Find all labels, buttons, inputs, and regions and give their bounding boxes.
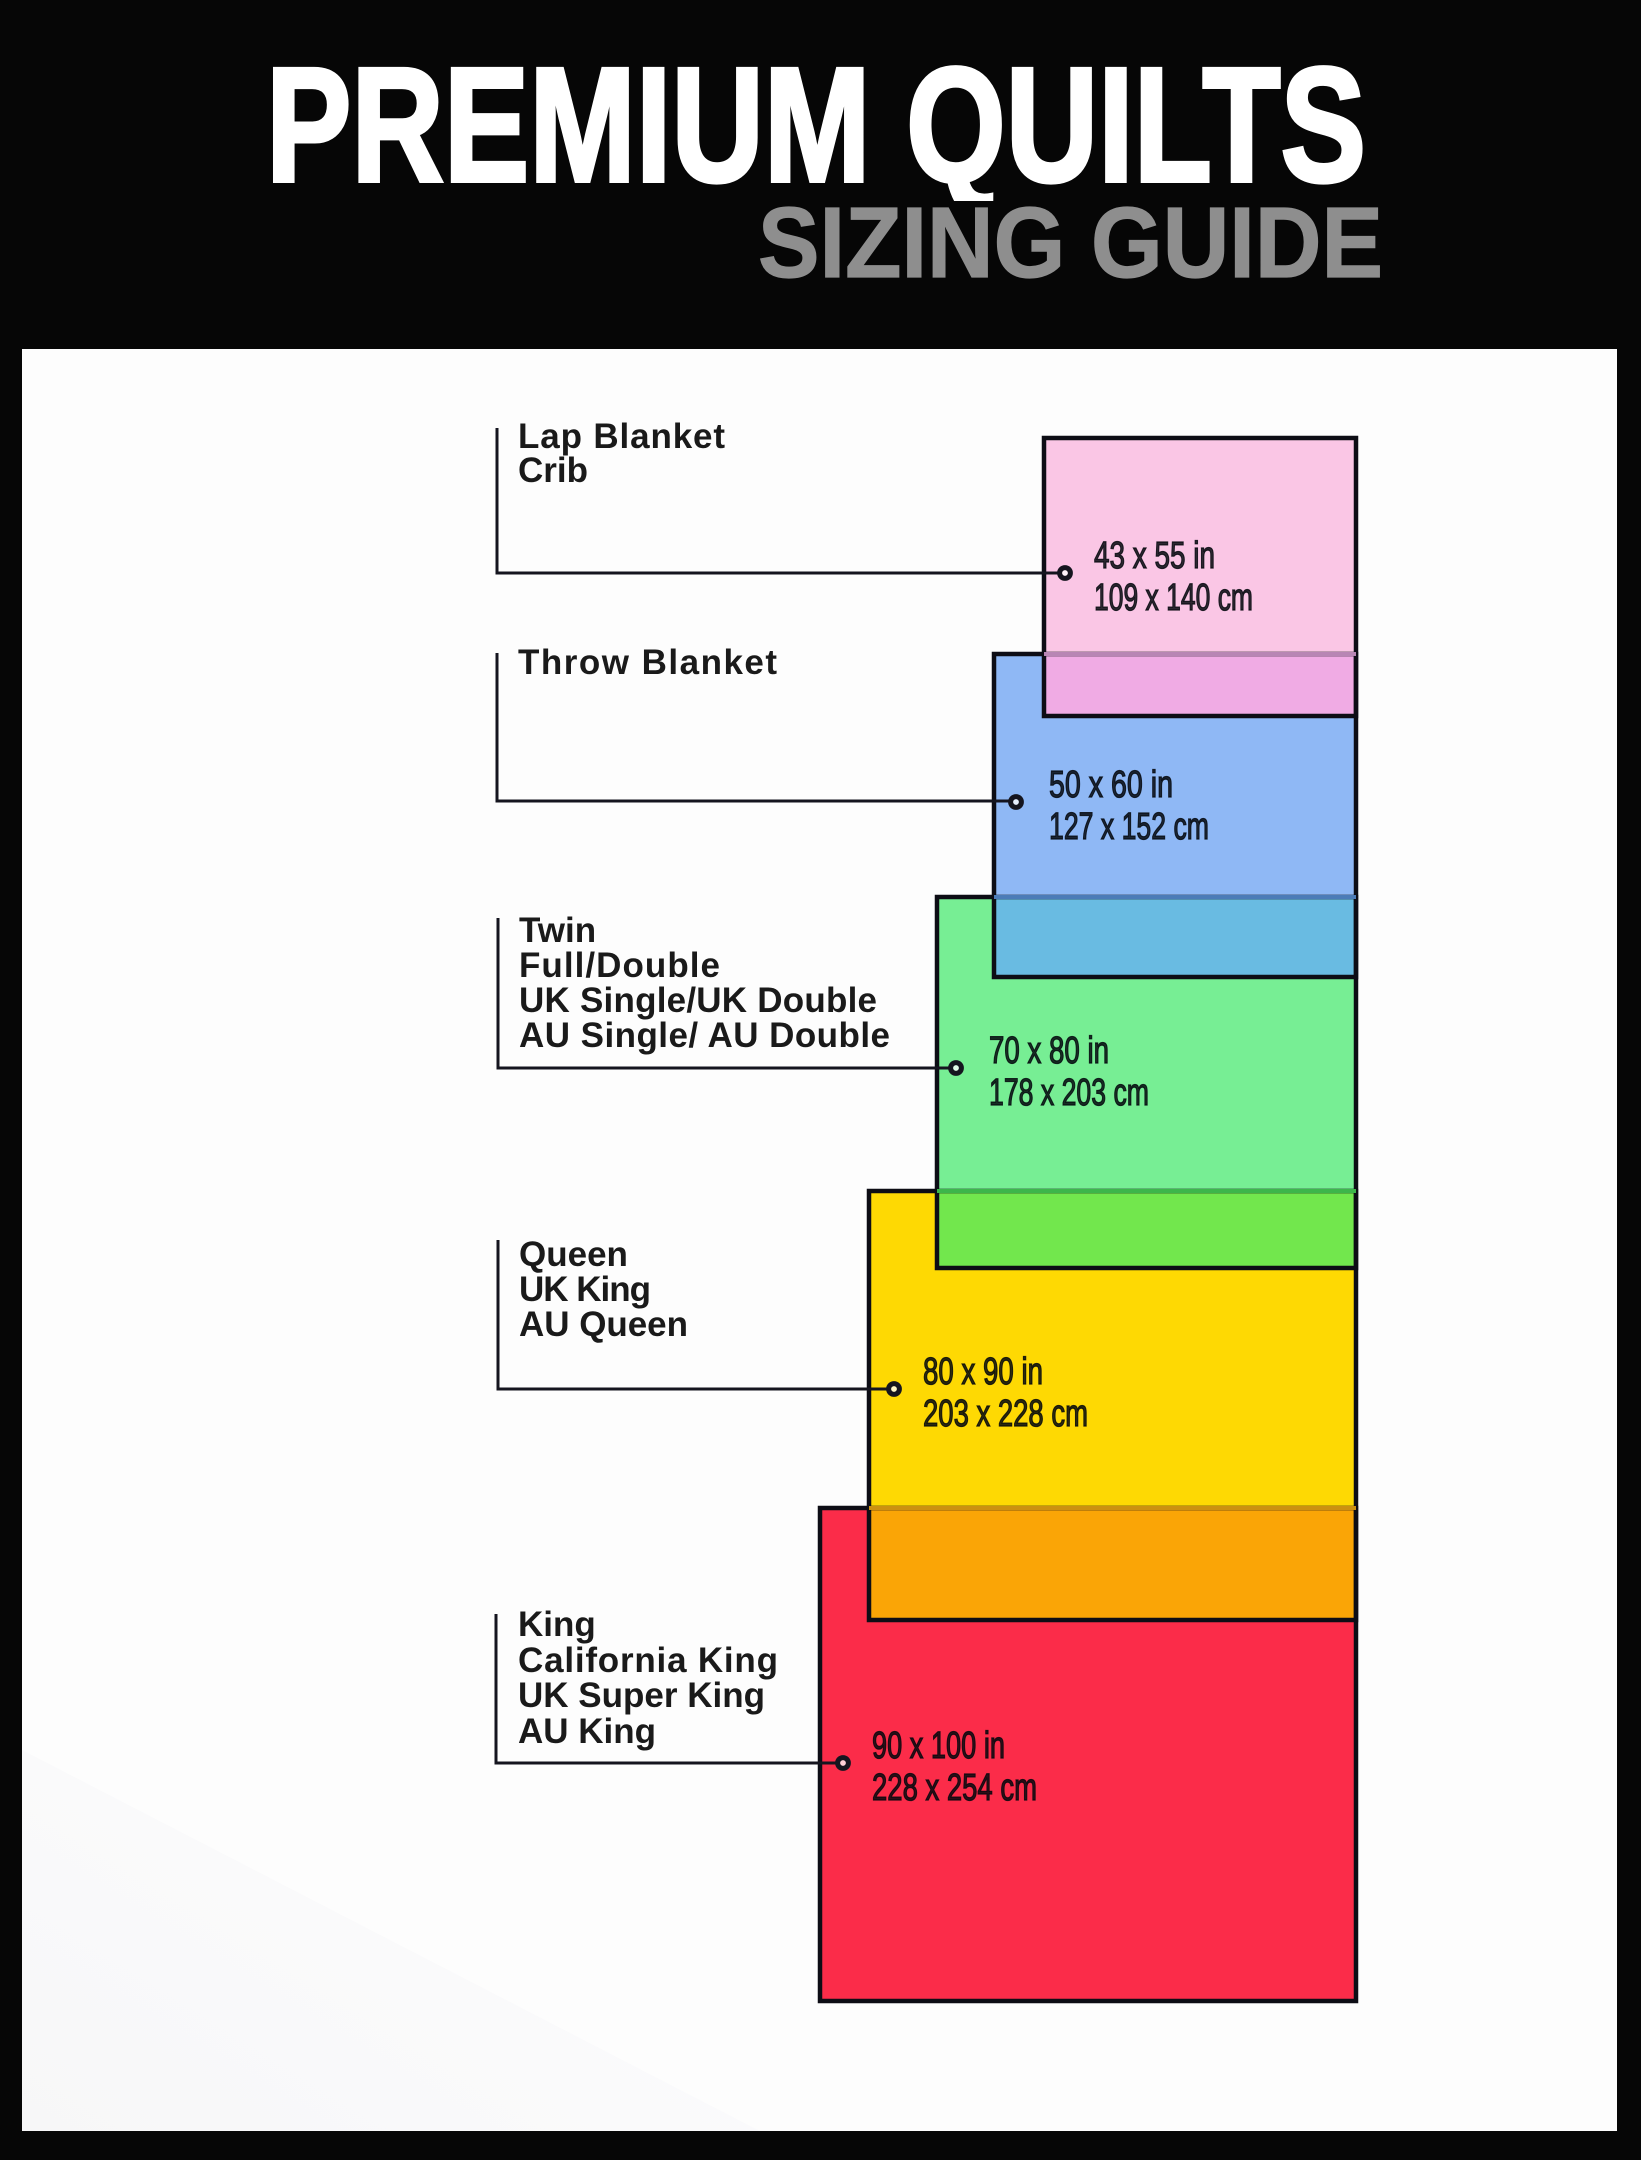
svg-text:UK King: UK King	[519, 1270, 651, 1309]
svg-text:AU Queen: AU Queen	[519, 1305, 688, 1344]
svg-text:203 x 228 cm: 203 x 228 cm	[923, 1393, 1088, 1435]
svg-text:50 x 60 in: 50 x 60 in	[1049, 764, 1173, 806]
svg-text:Crib: Crib	[518, 451, 588, 490]
svg-text:Twin: Twin	[519, 911, 596, 950]
svg-text:178 x 203 cm: 178 x 203 cm	[989, 1072, 1149, 1114]
svg-text:AU Single/ AU Double: AU Single/ AU Double	[519, 1016, 890, 1055]
svg-text:Full/Double: Full/Double	[519, 946, 720, 985]
svg-text:King: King	[518, 1605, 596, 1644]
svg-text:UK Single/UK Double: UK Single/UK Double	[519, 981, 877, 1020]
svg-text:UK Super King: UK Super King	[518, 1676, 765, 1715]
svg-text:SIZING GUIDE: SIZING GUIDE	[758, 187, 1383, 299]
svg-text:Queen: Queen	[519, 1235, 628, 1274]
svg-text:California King: California King	[518, 1641, 778, 1680]
svg-text:80 x 90 in: 80 x 90 in	[923, 1351, 1043, 1393]
svg-text:90 x 100 in: 90 x 100 in	[872, 1725, 1005, 1767]
svg-text:Throw Blanket: Throw Blanket	[518, 643, 777, 682]
svg-text:109 x 140 cm: 109 x 140 cm	[1094, 577, 1253, 619]
svg-text:228 x 254 cm: 228 x 254 cm	[872, 1767, 1037, 1809]
svg-text:127 x 152 cm: 127 x 152 cm	[1049, 806, 1209, 848]
svg-text:43 x 55 in: 43 x 55 in	[1094, 535, 1215, 577]
svg-text:AU King: AU King	[518, 1712, 656, 1751]
svg-text:70 x 80 in: 70 x 80 in	[989, 1030, 1109, 1072]
